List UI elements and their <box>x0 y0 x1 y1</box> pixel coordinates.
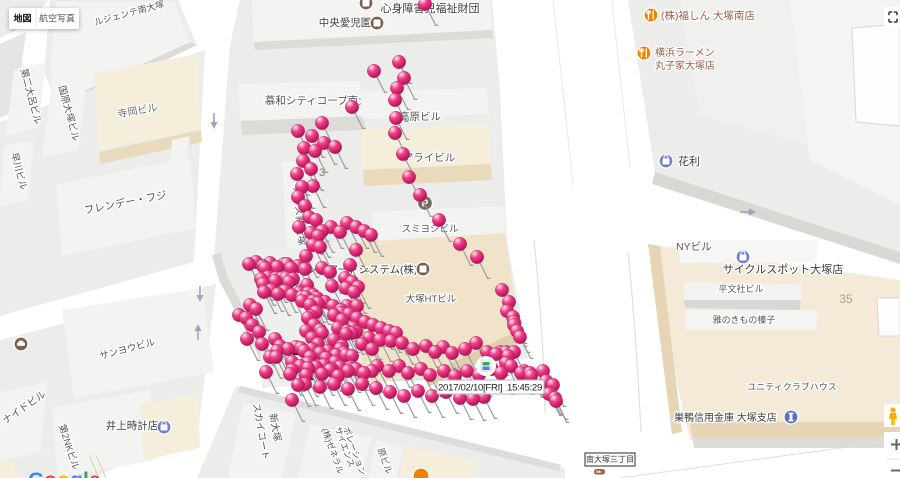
svg-text:雅のきもの榛子: 雅のきもの榛子 <box>713 314 776 325</box>
svg-text:e: e <box>89 469 101 478</box>
svg-text:井上時計店: 井上時計店 <box>106 419 159 432</box>
svg-text:(株)福しん 大塚南店: (株)福しん 大塚南店 <box>661 9 755 22</box>
svg-text:l: l <box>83 469 89 478</box>
svg-text:航空写真: 航空写真 <box>39 13 75 24</box>
svg-text:南大塚三丁目: 南大塚三丁目 <box>586 454 634 464</box>
svg-text:大塚HTビル: 大塚HTビル <box>406 293 457 305</box>
svg-text:g: g <box>70 469 83 478</box>
svg-text:花利: 花利 <box>678 155 700 168</box>
svg-text:NYビル: NYビル <box>676 241 712 253</box>
svg-text:ユニティクラブハウス: ユニティクラブハウス <box>747 381 836 392</box>
svg-text:G: G <box>28 469 44 478</box>
svg-text:o: o <box>57 469 70 478</box>
svg-text:巣鴨信用金庫 大塚支店: 巣鴨信用金庫 大塚支店 <box>674 411 777 424</box>
svg-text:サイクルスポット大塚店: サイクルスポット大塚店 <box>723 262 843 276</box>
svg-text:アライビル: アライビル <box>403 152 456 164</box>
svg-text:2017/02/10[FRI] 15:45:29: 2017/02/10[FRI] 15:45:29 <box>438 383 542 394</box>
svg-text:o: o <box>44 469 57 478</box>
svg-text:35: 35 <box>839 292 853 306</box>
svg-text:横浜ラーメン: 横浜ラーメン <box>655 46 715 59</box>
svg-text:中央愛児園: 中央愛児園 <box>319 16 372 29</box>
svg-text:スミヨシビル: スミヨシビル <box>401 224 459 235</box>
svg-text:平文社ビル: 平文社ビル <box>718 283 763 294</box>
svg-text:地図: 地図 <box>13 13 31 24</box>
svg-text:丸子家大塚店: 丸子家大塚店 <box>655 59 715 72</box>
